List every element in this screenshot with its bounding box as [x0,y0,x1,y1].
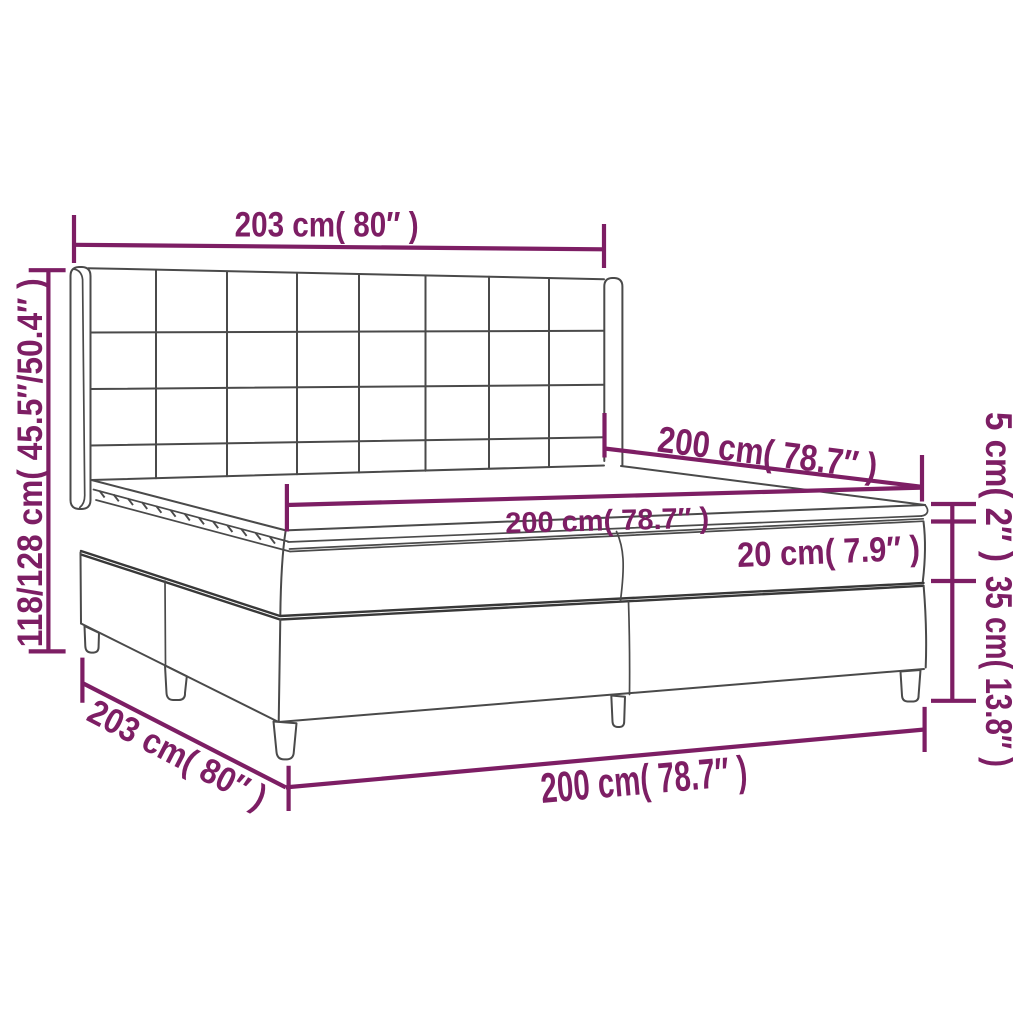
svg-text:5 cm( 2″ ): 5 cm( 2″ ) [978,412,1019,562]
svg-text:200 cm( 78.7″ ): 200 cm( 78.7″ ) [505,502,710,540]
svg-text:20 cm( 7.9″ ): 20 cm( 7.9″ ) [736,529,920,575]
svg-text:203 cm( 80″ ): 203 cm( 80″ ) [235,205,419,244]
svg-text:118/128 cm( 45.5″/50.4″ ): 118/128 cm( 45.5″/50.4″ ) [11,278,50,647]
svg-text:35 cm( 13.8″ ): 35 cm( 13.8″ ) [978,576,1019,767]
